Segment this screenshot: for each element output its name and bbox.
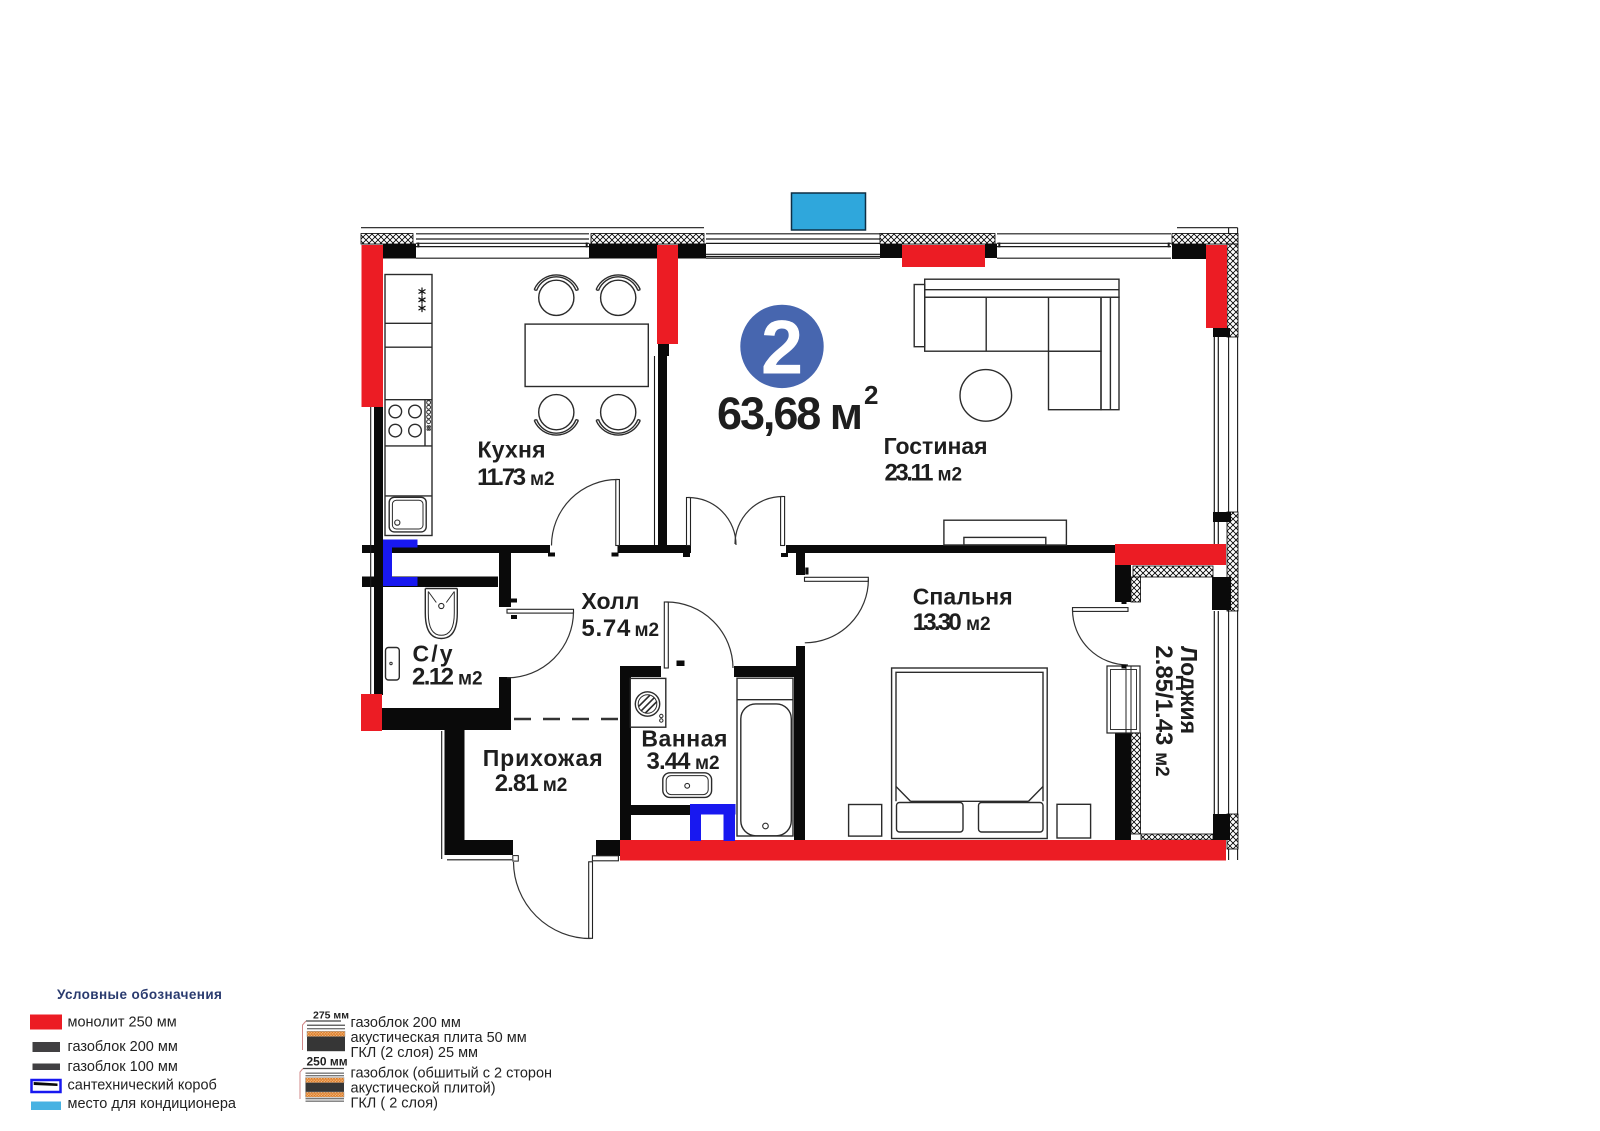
svg-text:Гостиная: Гостиная: [884, 433, 988, 459]
svg-text:ГКЛ (2 слоя) 25 мм: ГКЛ (2 слоя) 25 мм: [351, 1045, 479, 1061]
svg-text:м2: м2: [458, 669, 483, 690]
svg-text:м2: м2: [695, 753, 720, 774]
svg-text:13.30: 13.30: [913, 609, 962, 636]
svg-text:2.12: 2.12: [412, 664, 454, 691]
svg-text:газоблок 200 мм: газоблок 200 мм: [351, 1015, 461, 1031]
svg-text:Кухня: Кухня: [478, 437, 546, 463]
svg-text:2: 2: [761, 306, 803, 391]
svg-text:м2: м2: [938, 464, 963, 485]
svg-text:м2: м2: [635, 620, 660, 641]
svg-text:63,68 м: 63,68 м: [717, 388, 863, 439]
svg-text:газоблок 100 мм: газоблок 100 мм: [68, 1059, 178, 1075]
svg-text:сантехнический короб: сантехнический короб: [68, 1078, 217, 1094]
svg-text:2.85/1.43 м2: 2.85/1.43 м2: [1150, 645, 1177, 776]
svg-text:газоблок 200 мм: газоблок 200 мм: [68, 1039, 178, 1055]
svg-text:2: 2: [864, 380, 878, 410]
svg-text:Холл: Холл: [581, 588, 639, 614]
svg-text:Прихожая: Прихожая: [483, 745, 603, 771]
svg-text:250 мм: 250 мм: [307, 1055, 348, 1069]
svg-text:Лоджия: Лоджия: [1176, 646, 1202, 734]
svg-text:м2: м2: [966, 614, 991, 635]
svg-text:м2: м2: [543, 775, 568, 796]
svg-text:ГКЛ ( 2 слоя): ГКЛ ( 2 слоя): [351, 1096, 438, 1112]
svg-text:акустическая плита 50 мм: акустическая плита 50 мм: [351, 1030, 527, 1046]
svg-text:11.73: 11.73: [477, 464, 526, 491]
svg-text:2.81: 2.81: [495, 770, 539, 797]
svg-text:Спальня: Спальня: [913, 584, 1013, 610]
svg-text:275 мм: 275 мм: [313, 1010, 349, 1022]
svg-text:монолит 250 мм: монолит 250 мм: [68, 1015, 177, 1031]
svg-text:Условные обозначения: Условные обозначения: [57, 987, 222, 1002]
svg-text:газоблок (обшитый с 2 сторон: газоблок (обшитый с 2 сторон: [351, 1066, 553, 1082]
svg-text:акустической плитой): акустической плитой): [351, 1081, 496, 1097]
svg-text:место для кондиционера: место для кондиционера: [68, 1096, 237, 1112]
svg-text:м2: м2: [530, 469, 555, 490]
svg-text:3.44: 3.44: [647, 748, 692, 775]
svg-text:5.74: 5.74: [581, 615, 631, 642]
svg-text:23.11: 23.11: [885, 459, 934, 486]
